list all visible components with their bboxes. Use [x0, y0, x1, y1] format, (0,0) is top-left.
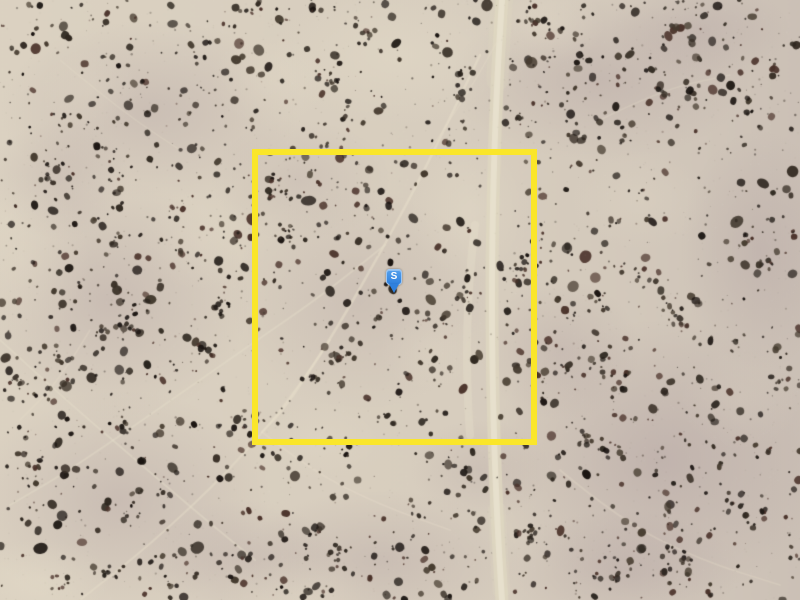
- marker-pin-tail: [389, 284, 399, 293]
- marker-label: S: [391, 272, 398, 282]
- property-marker[interactable]: S: [386, 269, 402, 293]
- map-viewport: S: [0, 0, 800, 600]
- satellite-imagery: [0, 0, 800, 600]
- marker-pin-head: S: [386, 269, 402, 285]
